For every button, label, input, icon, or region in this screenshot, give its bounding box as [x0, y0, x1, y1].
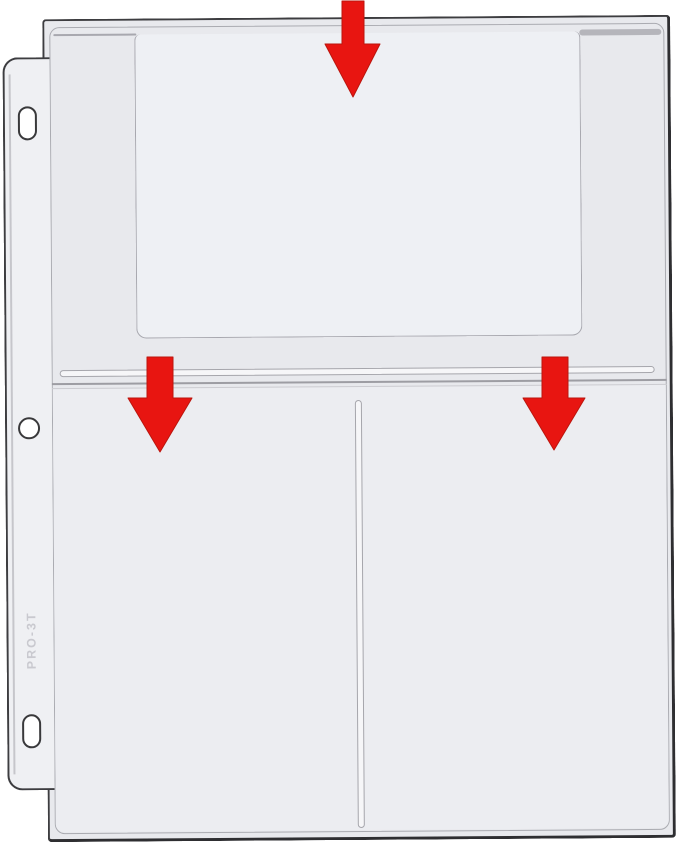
punch-hole-middle [18, 417, 40, 439]
top-pocket-card-outline [134, 31, 582, 338]
product-photo: PRO-3T [0, 0, 679, 844]
punch-hole-top [18, 106, 37, 140]
top-pocket-right-slot [579, 29, 661, 36]
punch-hole-bottom [22, 714, 41, 748]
embossed-product-code: PRO-3T [24, 600, 39, 680]
sheet-protector: PRO-3T [0, 0, 679, 847]
